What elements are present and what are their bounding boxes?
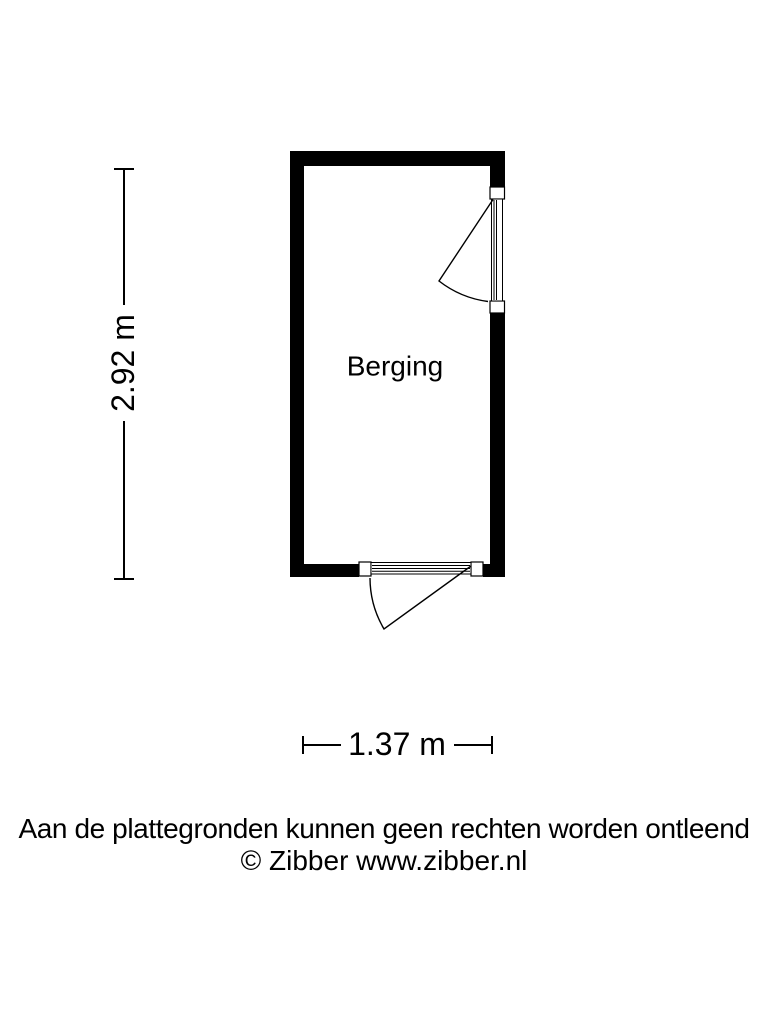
room-label: Berging — [347, 351, 444, 382]
door-swing-right — [439, 200, 493, 302]
door-frame-right-bottom — [490, 301, 505, 313]
width-dimension-label: 1.37 m — [348, 726, 446, 762]
copyright-text: © Zibber www.zibber.nl — [0, 847, 768, 875]
door-frame-bottom-right — [471, 562, 483, 576]
door-frame-right-top — [490, 187, 505, 199]
disclaimer-text: Aan de plattegronden kunnen geen rechten… — [0, 815, 768, 843]
height-dimension-label: 2.92 m — [105, 314, 141, 412]
door-frame-bottom-left — [359, 562, 371, 576]
